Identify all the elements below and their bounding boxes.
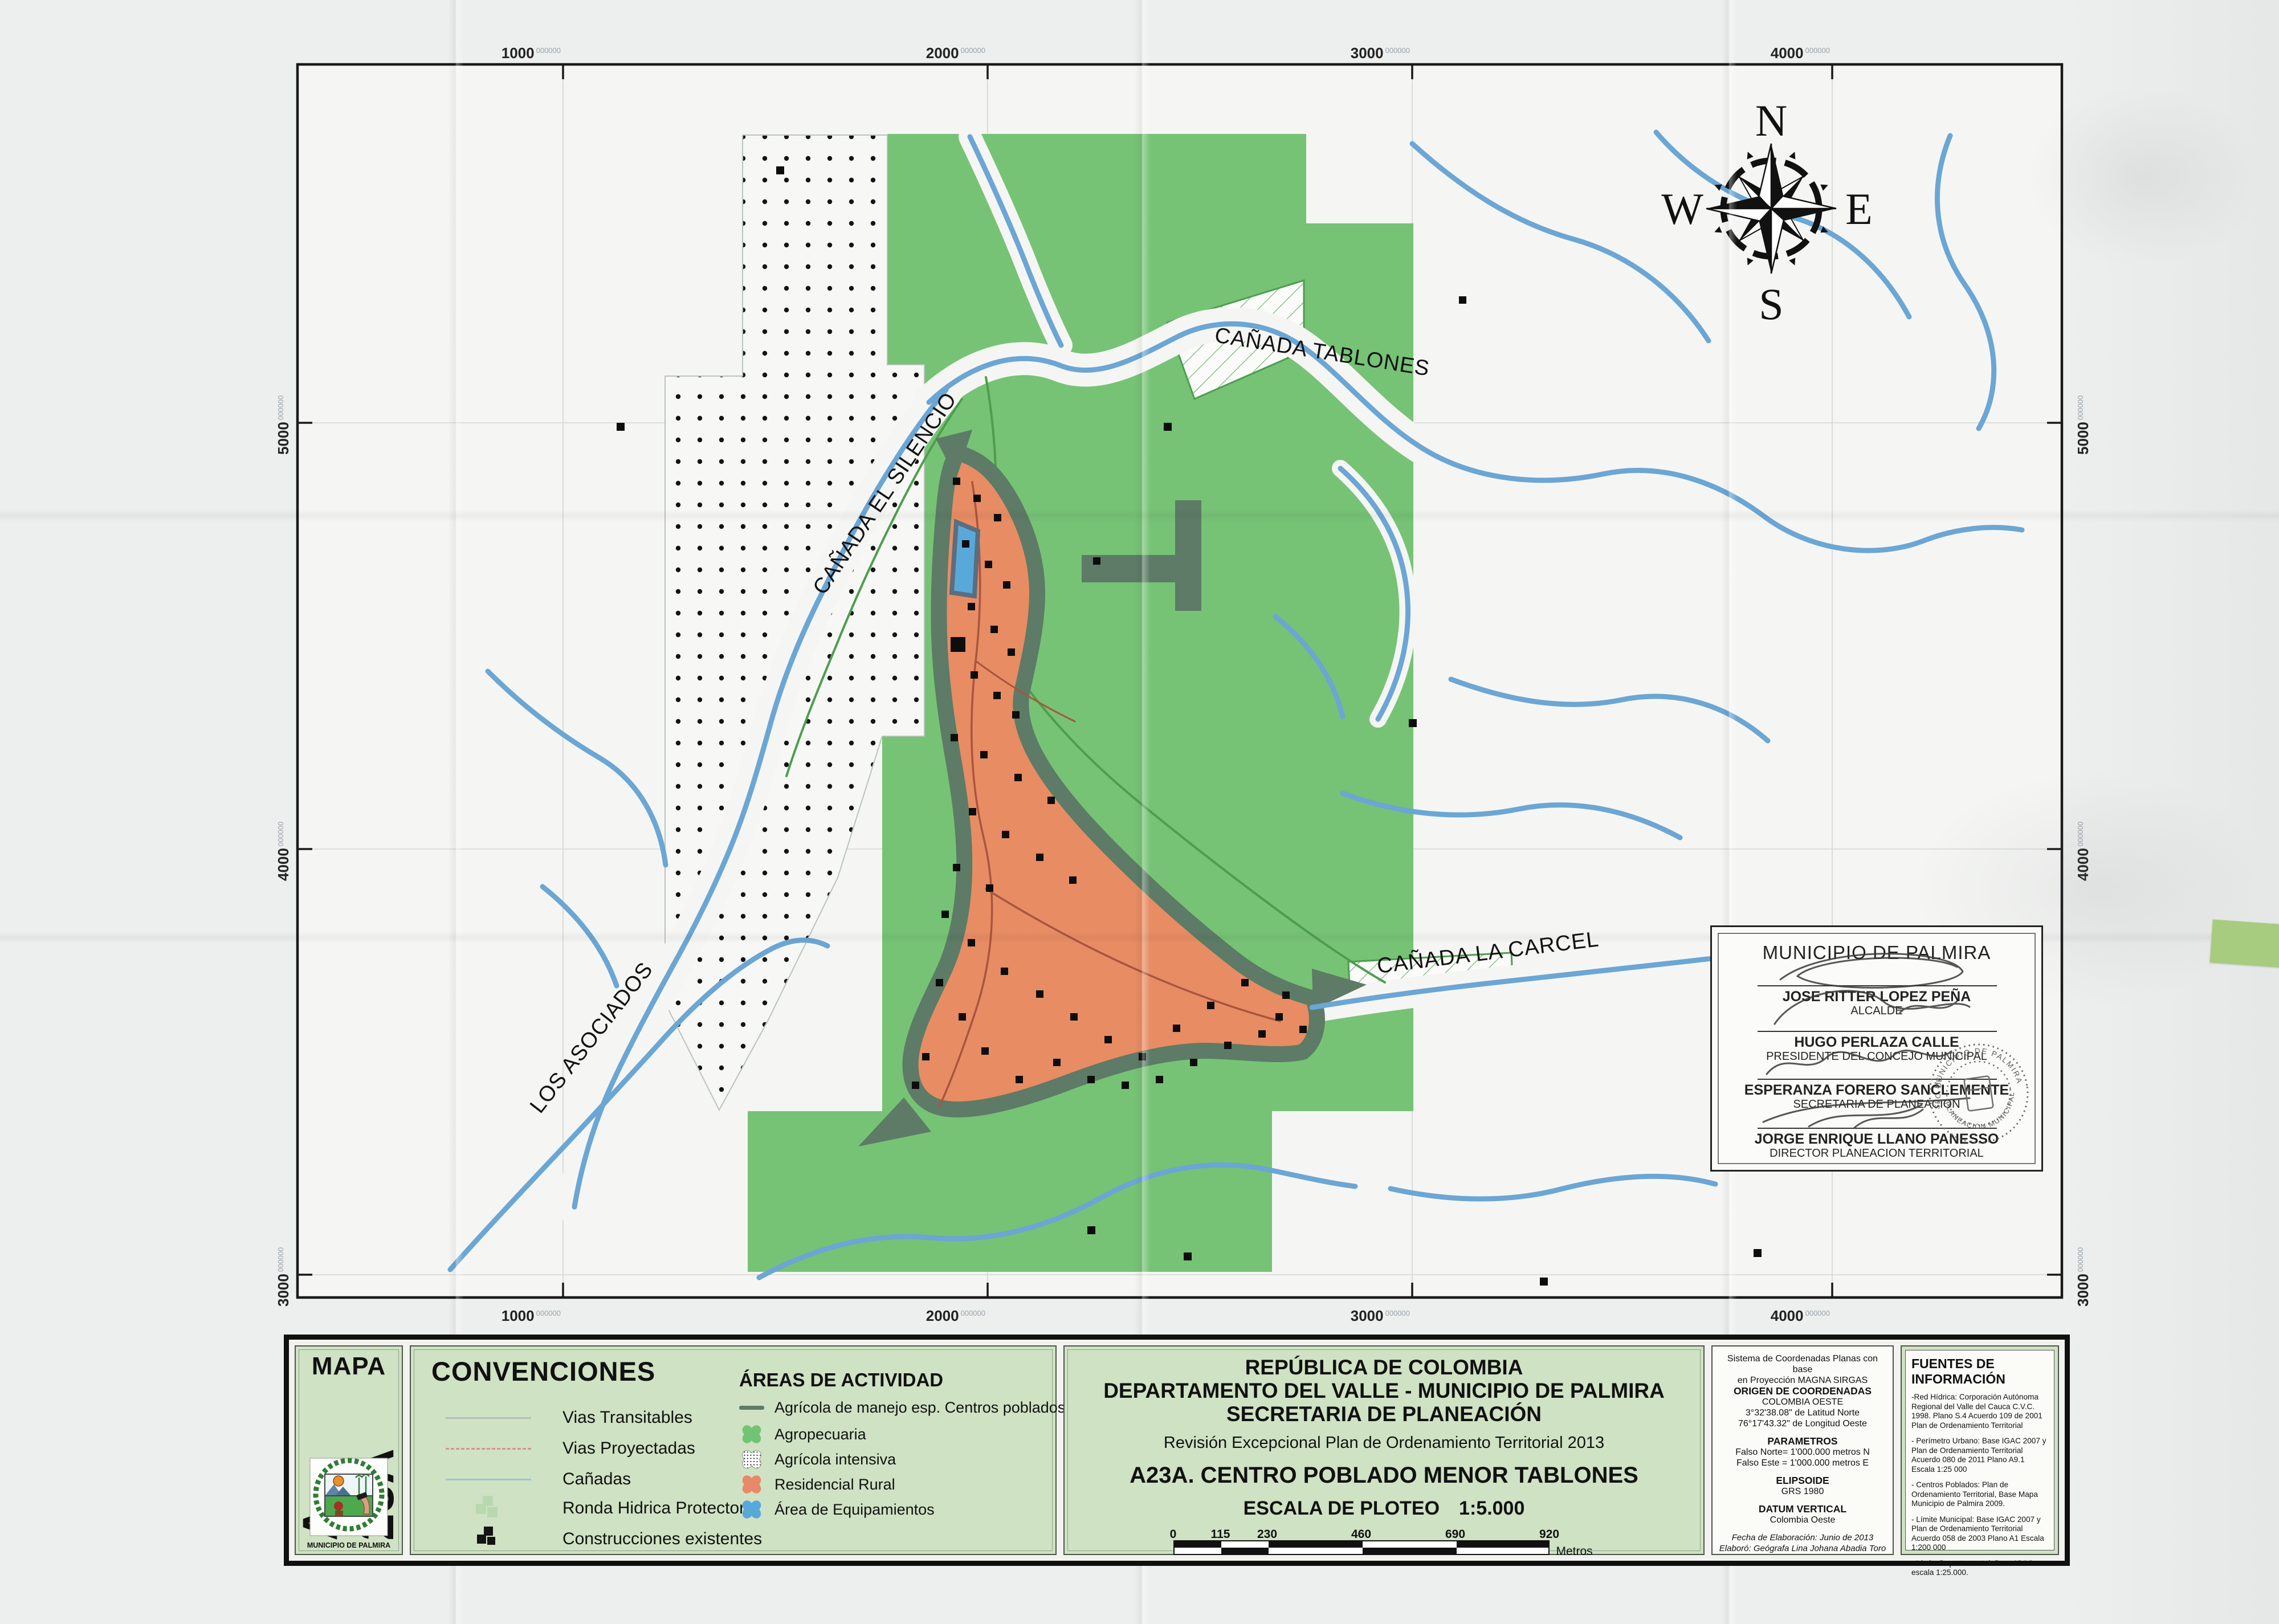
scalebar-graphic <box>1173 1540 1550 1555</box>
compass-w: W <box>1661 184 1703 234</box>
areas-actividad-title: ÁREAS DE ACTIVIDAD <box>739 1369 943 1391</box>
area-equipamientos <box>952 522 978 596</box>
grid-label-top-2: 2000000000 <box>926 44 985 62</box>
coord-lat: 3°32'38.08" de Latitud Norte <box>1717 1407 1888 1418</box>
fuente-limite-departamental: - Límite Departamental: Base IGAC escala… <box>1911 1559 2048 1578</box>
coordinates-box: Sistema de Coordenadas Planas con base e… <box>1711 1345 1894 1555</box>
fuentes-title: FUENTES DE INFORMACIÓN <box>1911 1356 2048 1387</box>
vias-transitables-symbol <box>437 1417 540 1419</box>
grid-label-bottom-4: 4000000000 <box>1771 1307 1830 1324</box>
compass-n: N <box>1755 96 1787 145</box>
coord-lon: 76°17'43.32" de Longitud Oeste <box>1717 1418 1888 1429</box>
convenciones-box: CONVENCIONES Vias Transitables Vias Proy… <box>410 1345 1057 1555</box>
agricola-manejo-symbol <box>739 1406 771 1410</box>
grid-label-bottom-3: 3000000000 <box>1351 1307 1410 1324</box>
scale-label: ESCALA DE PLOTEO <box>1244 1497 1440 1519</box>
agropecuaria-label: Agropecuaria <box>774 1426 866 1443</box>
equipamientos-label: Área de Equipamientos <box>774 1501 935 1519</box>
svg-text:SEC. DE: SEC. DE <box>1933 1076 1943 1109</box>
agricola-manejo-label: Agrícola de manejo esp. Centros poblados <box>774 1399 1065 1417</box>
signature-block: MUNICIPIO DE PALMIRA JOSE RITTER LOPEZ P… <box>1710 925 2043 1172</box>
datum-title: DATUM VERTICAL <box>1717 1504 1888 1515</box>
scalebar-tick-0: 0 <box>1170 1528 1177 1541</box>
ronda-hidrica-label: Ronda Hidrica Protectora <box>562 1499 755 1518</box>
secretary-title: SECRETARIA DE PLANEACIÓN <box>1065 1402 1703 1426</box>
svg-text:PLANEACION MUNICIPAL: PLANEACION MUNICIPAL <box>1942 1091 2020 1136</box>
fuente-limite-municipal: - Límite Municipal: Base IGAC 2007 y Pla… <box>1911 1515 2048 1553</box>
agropecuaria-symbol <box>739 1423 771 1446</box>
map-code-box: MAPA A-23A MUNICIPIO DE PALMIRA <box>295 1345 403 1555</box>
fuentes-box: FUENTES DE INFORMACIÓN -Red Hídrica: Cor… <box>1901 1345 2059 1555</box>
construcciones-symbol <box>437 1524 540 1554</box>
grid-label-bottom-1: 1000000000 <box>502 1307 561 1324</box>
scan-blotch-2 <box>2023 85 2262 268</box>
scalebar-tick-5: 920 <box>1539 1528 1559 1541</box>
municipal-seal-icon <box>309 1457 389 1537</box>
grid-label-left-2: 4000000000 <box>275 822 292 881</box>
agricola-intensiva-label: Agrícola intensiva <box>774 1451 896 1468</box>
datum-value: Colombia Oeste <box>1717 1515 1888 1525</box>
construcciones-label: Construcciones existentes <box>562 1529 762 1549</box>
mapa-word: MAPA <box>296 1352 402 1381</box>
false-east: Falso Este = 1'000.000 metros E <box>1717 1458 1888 1468</box>
canadas-symbol <box>437 1479 540 1480</box>
title-block: REPÚBLICA DE COLOMBIA DEPARTAMENTO DEL V… <box>1063 1345 1705 1555</box>
elaboration-author: Elaboró: Geógrafa Lina Johana Abadia Tor… <box>1717 1543 1888 1554</box>
signature-ink-and-stamp: MUNICIPIO DE PALMIRA PLANEACION MUNICIPA… <box>1712 927 2041 1170</box>
scanned-map-sheet: { "colors": { "paper": "#edefee", "map_b… <box>0 0 2279 1624</box>
scale-value: 1:5.000 <box>1459 1497 1524 1519</box>
grid-label-bottom-2: 2000000000 <box>926 1307 985 1324</box>
coord-origin-title: ORIGEN DE COORDENADAS <box>1717 1386 1888 1397</box>
grid-label-top-1: 1000000000 <box>502 44 561 62</box>
vias-proyectadas-symbol <box>437 1448 540 1450</box>
grid-label-left-1: 5000000000 <box>275 395 292 455</box>
coord-zone: COLOMBIA OESTE <box>1717 1397 1888 1407</box>
legend-panel: MAPA A-23A MUNICIPIO DE PALMIRA CONVENCI… <box>284 1335 2070 1566</box>
scalebar-tick-1: 115 <box>1211 1528 1230 1541</box>
sticky-tab <box>2210 920 2279 968</box>
scalebar-tick-2: 230 <box>1257 1528 1277 1541</box>
scale-bar: 0 115 230 460 690 920 <box>1173 1528 1595 1563</box>
vias-transitables-label: Vias Transitables <box>562 1408 692 1427</box>
country-title: REPÚBLICA DE COLOMBIA <box>1065 1356 1703 1379</box>
ronda-hidrica-symbol <box>437 1494 540 1523</box>
params-title: PARAMETROS <box>1717 1436 1888 1447</box>
elaboration-date: Fecha de Elaboración: Junio de 2013 <box>1717 1532 1888 1543</box>
scalebar-tick-4: 690 <box>1445 1528 1465 1541</box>
fuente-red-hidrica: -Red Hídrica: Corporación Autónoma Regio… <box>1911 1393 2048 1430</box>
fuente-centros-poblados: - Centros Poblados: Plan de Ordenamiento… <box>1911 1480 2048 1509</box>
false-north: Falso Norte= 1'000.000 metros N <box>1717 1447 1888 1458</box>
coord-line-1: Sistema de Coordenadas Planas con base <box>1717 1353 1888 1375</box>
paper-fold-horizontal-1 <box>0 509 2279 522</box>
compass-e: E <box>1845 184 1873 234</box>
round-stamp-icon: MUNICIPIO DE PALMIRA PLANEACION MUNICIPA… <box>1923 1038 2034 1149</box>
compass-s: S <box>1759 279 1783 329</box>
ellipsoid-value: GRS 1980 <box>1717 1486 1888 1497</box>
revision-subtitle: Revisión Excepcional Plan de Ordenamient… <box>1065 1434 1703 1452</box>
fuente-perimetro-urbano: - Perímetro Urbano: Base IGAC 2007 y Pla… <box>1911 1437 2048 1474</box>
residencial-rural-label: Residencial Rural <box>774 1476 895 1494</box>
ellipsoid-title: ELIPSOIDE <box>1717 1475 1888 1486</box>
residencial-rural-symbol <box>739 1473 771 1496</box>
vias-proyectadas-label: Vias Proyectadas <box>562 1439 695 1458</box>
convenciones-title: CONVENCIONES <box>431 1356 655 1387</box>
seal-caption: MUNICIPIO DE PALMIRA <box>296 1541 402 1549</box>
scalebar-tick-3: 460 <box>1351 1528 1371 1541</box>
canadas-label: Cañadas <box>562 1470 631 1489</box>
grid-label-left-3: 3000000000 <box>275 1247 292 1307</box>
grid-label-top-4: 4000000000 <box>1771 44 1830 62</box>
grid-label-top-3: 3000000000 <box>1351 44 1410 62</box>
scalebar-unit: Metros <box>1556 1545 1593 1558</box>
equipamientos-symbol <box>739 1498 771 1521</box>
coord-line-2: en Proyección MAGNA SIRGAS <box>1717 1375 1888 1386</box>
map-title: A23A. CENTRO POBLADO MENOR TABLONES <box>1065 1463 1703 1488</box>
agricola-intensiva-symbol <box>739 1448 771 1471</box>
department-title: DEPARTAMENTO DEL VALLE - MUNICIPIO DE PA… <box>1065 1379 1703 1402</box>
